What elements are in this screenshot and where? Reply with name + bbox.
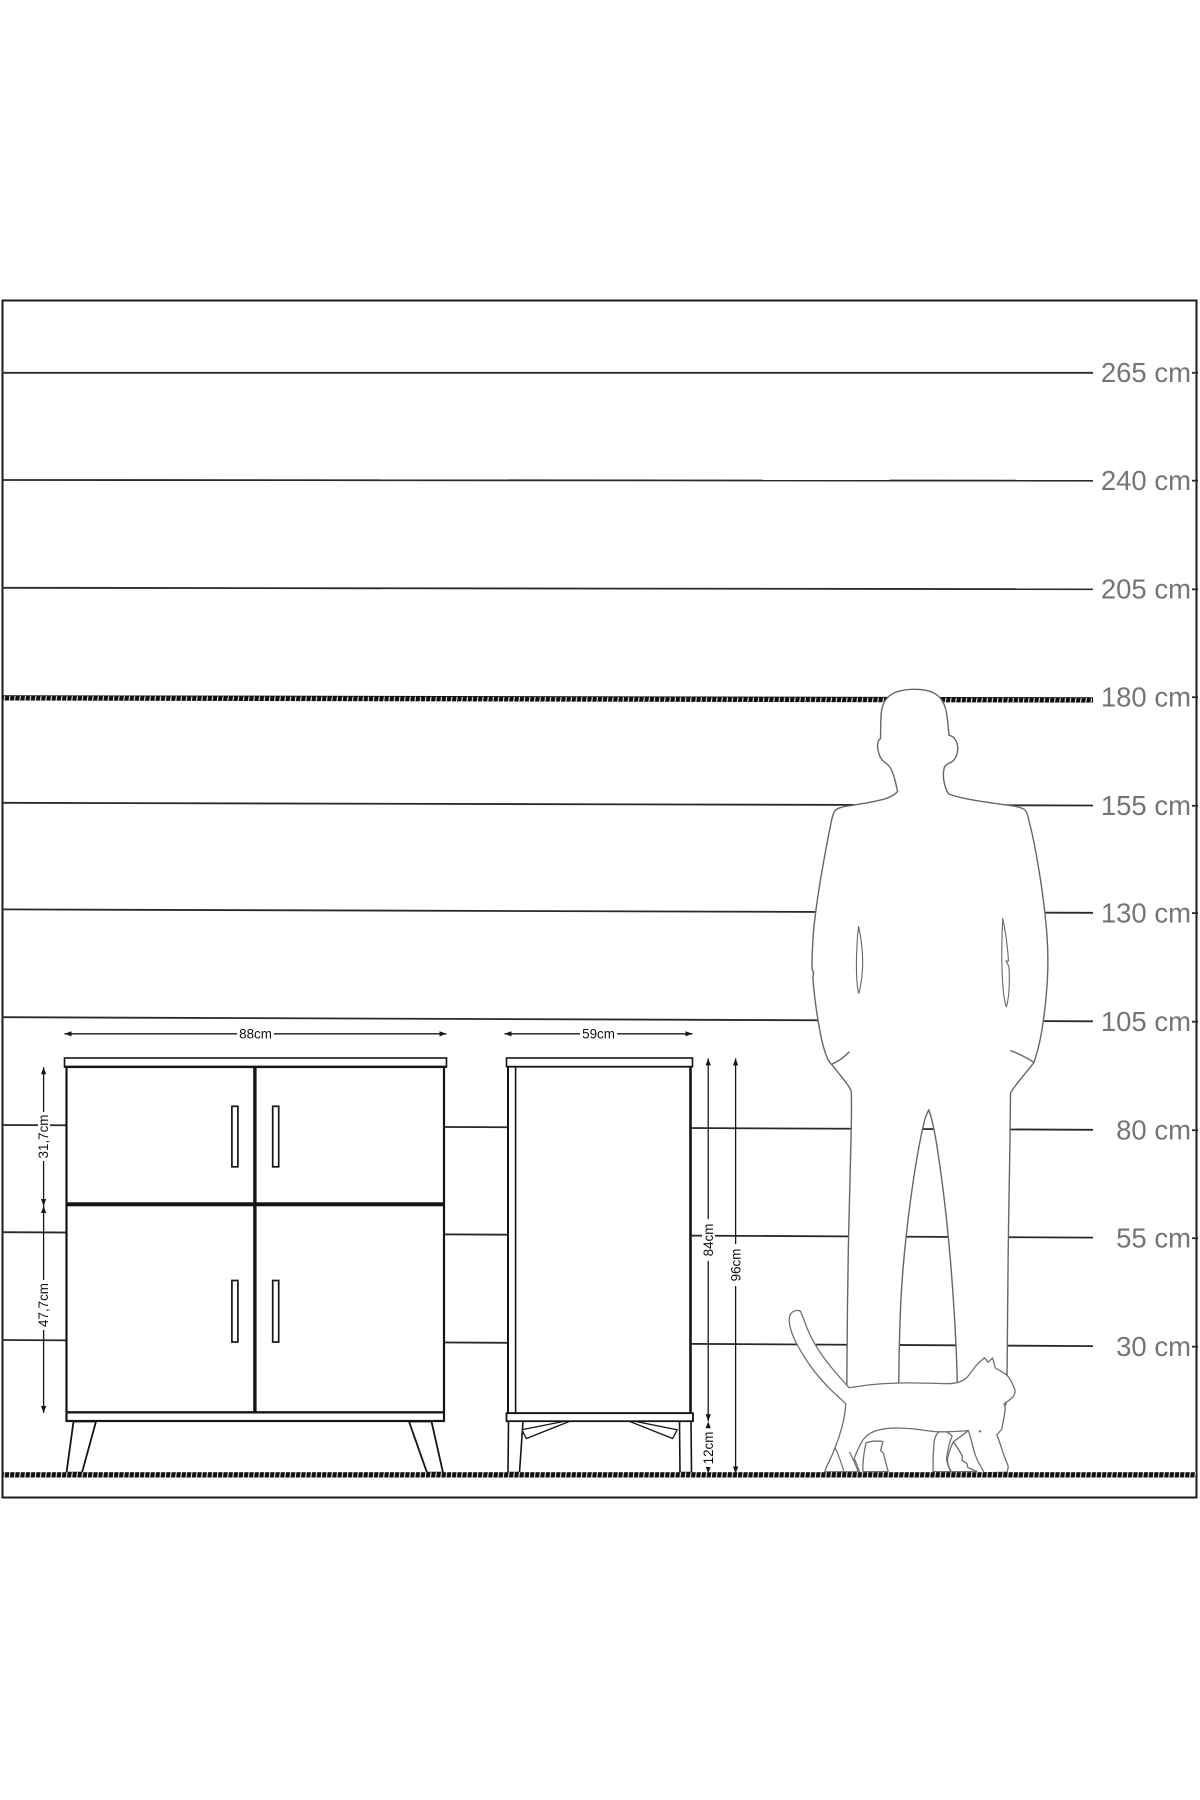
svg-text:12cm: 12cm	[701, 1432, 716, 1465]
svg-text:265 cm: 265 cm	[1101, 357, 1191, 388]
svg-text:180 cm: 180 cm	[1101, 682, 1191, 713]
svg-text:205 cm: 205 cm	[1101, 574, 1191, 605]
svg-text:155 cm: 155 cm	[1101, 790, 1191, 821]
svg-text:105 cm: 105 cm	[1101, 1006, 1191, 1037]
svg-text:30 cm: 30 cm	[1116, 1331, 1191, 1362]
svg-text:59cm: 59cm	[582, 1026, 615, 1041]
svg-text:130 cm: 130 cm	[1101, 897, 1191, 928]
svg-text:31,7cm: 31,7cm	[36, 1115, 51, 1159]
svg-text:88cm: 88cm	[239, 1026, 272, 1041]
svg-text:96cm: 96cm	[728, 1249, 743, 1282]
svg-text:240 cm: 240 cm	[1101, 465, 1191, 496]
svg-text:47,7cm: 47,7cm	[36, 1283, 51, 1327]
svg-text:80 cm: 80 cm	[1116, 1115, 1191, 1146]
svg-text:55 cm: 55 cm	[1116, 1223, 1191, 1254]
svg-text:84cm: 84cm	[701, 1224, 716, 1257]
